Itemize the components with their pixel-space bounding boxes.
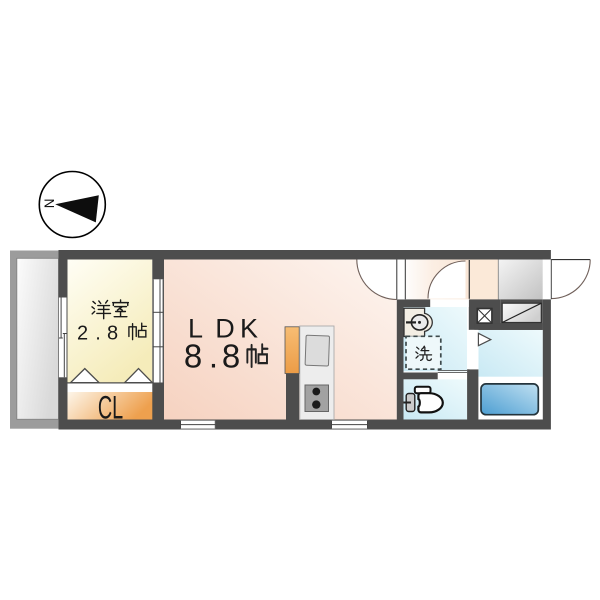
svg-text:N: N [41,199,56,209]
svg-text:8: 8 [222,337,240,374]
svg-text:K: K [240,314,258,344]
svg-text:8: 8 [184,337,202,374]
svg-text:.: . [209,337,218,374]
svg-text:2: 2 [77,322,88,344]
svg-text:.: . [95,322,101,344]
svg-text:CL: CL [98,389,123,425]
svg-text:8: 8 [107,322,118,344]
